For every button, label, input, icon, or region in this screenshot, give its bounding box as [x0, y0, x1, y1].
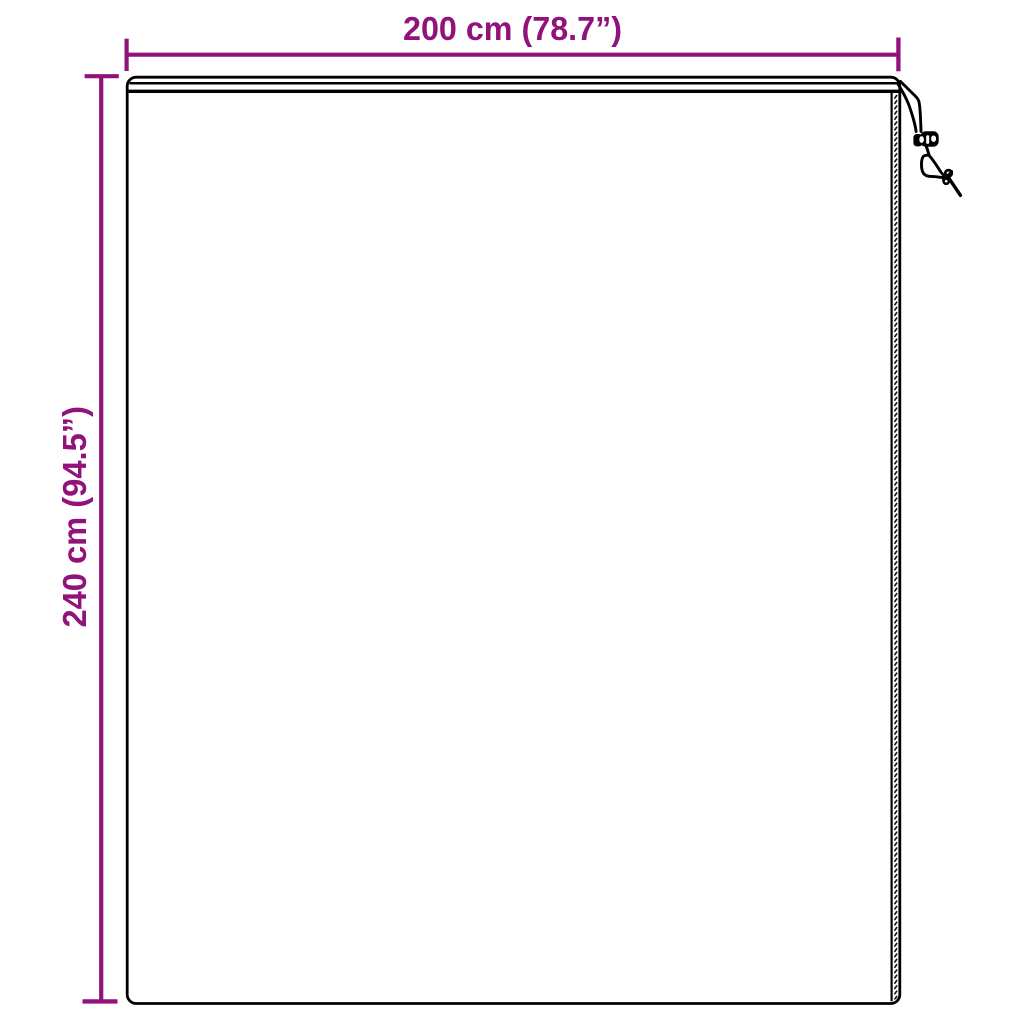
svg-text:240 cm (94.5”): 240 cm (94.5”) — [57, 406, 94, 628]
svg-text:200 cm (78.7”): 200 cm (78.7”) — [403, 11, 622, 48]
